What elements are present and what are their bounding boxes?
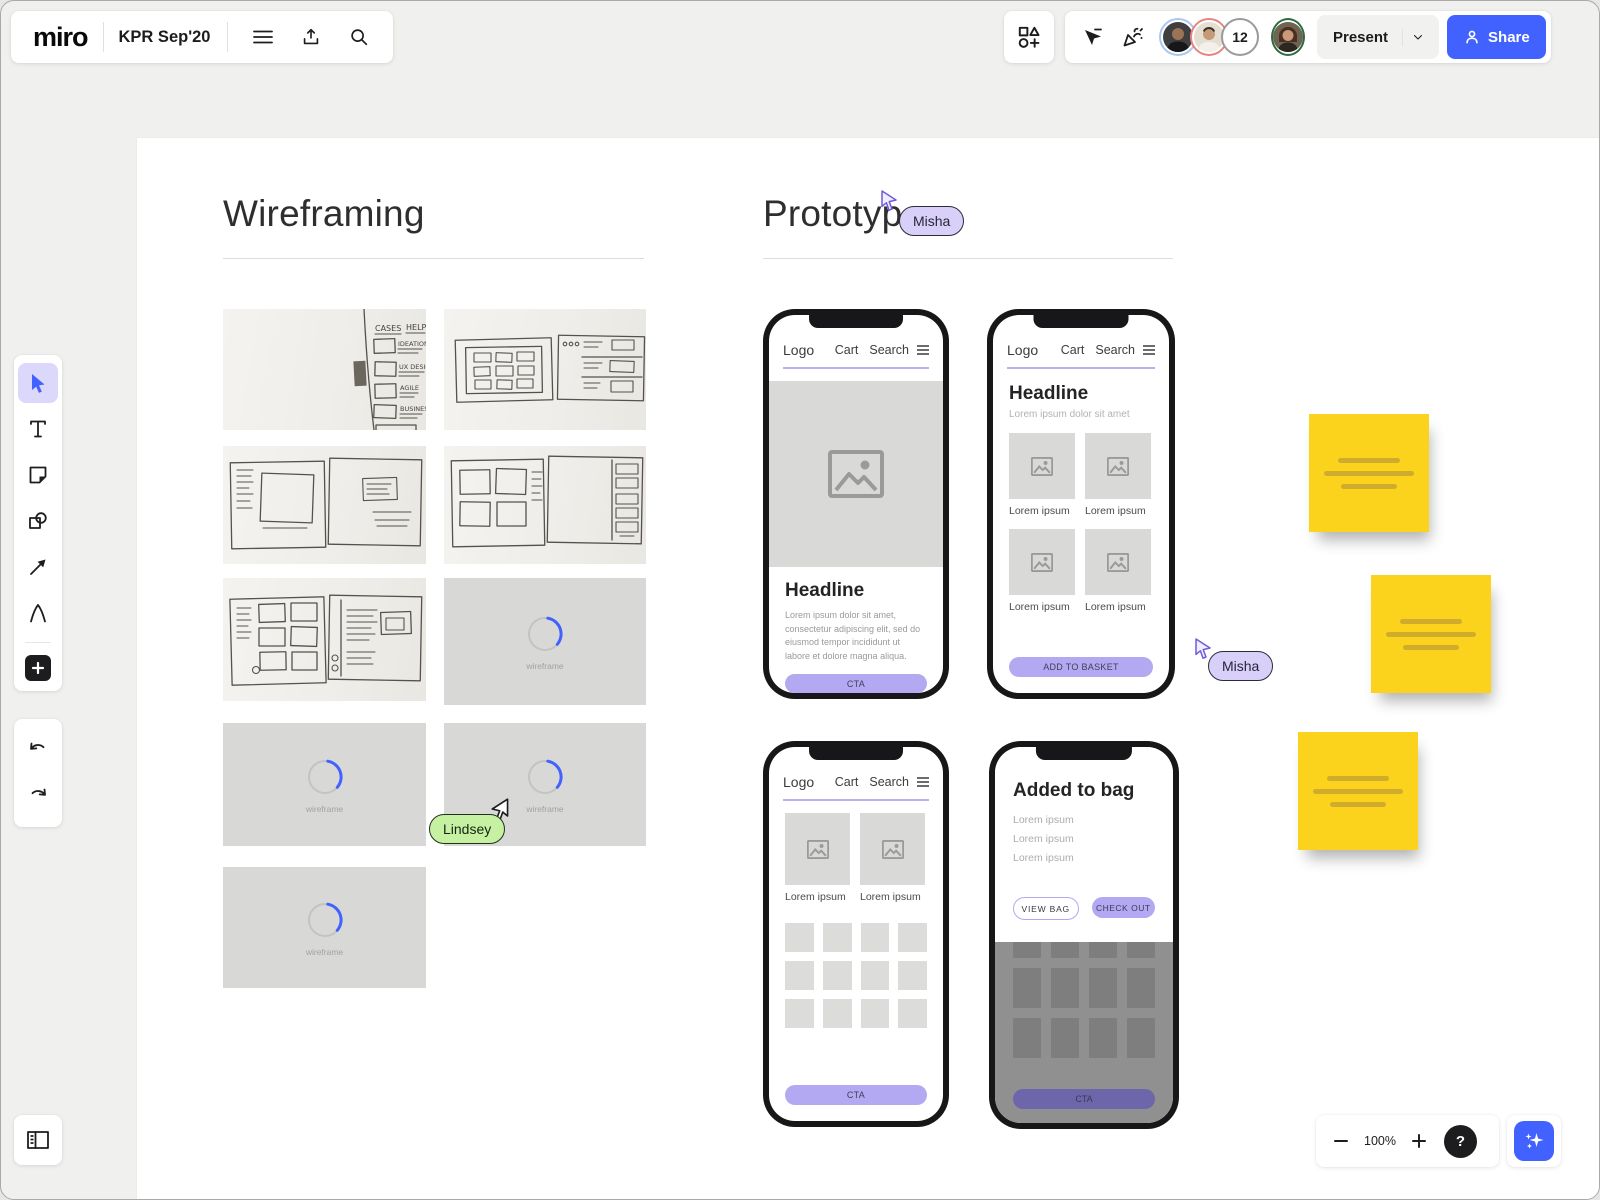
wireframe-photo-5[interactable]: [223, 578, 426, 701]
svg-text:HELP: HELP: [406, 323, 426, 332]
party-popper-icon: [1121, 25, 1145, 49]
dim-grid-tile: [1013, 1018, 1041, 1058]
grid-tile: [898, 961, 927, 990]
sparkles-icon: [1522, 1129, 1546, 1153]
present-button[interactable]: Present: [1317, 15, 1439, 59]
grid-tile: [785, 923, 814, 952]
phone-nav-logo: Logo: [1007, 342, 1050, 358]
phone-subtitle: Lorem ipsum dolor sit amet: [1009, 409, 1153, 420]
frames-panel-button[interactable]: [14, 1115, 62, 1165]
main-menu-button[interactable]: [243, 17, 283, 57]
image-placeholder-icon: [828, 450, 884, 498]
loading-label: wireframe: [526, 661, 563, 671]
phone-mockup-added-to-bag[interactable]: Added to bag Lorem ipsum Lorem ipsum Lor…: [989, 741, 1179, 1129]
more-tools-button[interactable]: [25, 655, 51, 681]
sticky-text-line: [1330, 802, 1386, 807]
assistant-card: [1507, 1115, 1561, 1167]
pen-tool[interactable]: [18, 593, 58, 633]
sticky-text-line: [1400, 619, 1462, 624]
phone-nav-search: Search: [869, 343, 909, 357]
sketch-grid-screens: [444, 309, 646, 430]
text-icon: [26, 417, 50, 441]
miro-app-window: Wireframing Prototyp CASES HELP IDEATION…: [0, 0, 1600, 1200]
miro-logo[interactable]: miro: [33, 22, 88, 53]
dimmed-page-background: CTA: [995, 942, 1173, 1123]
loading-spinner-icon: [303, 755, 347, 799]
zoom-in-button[interactable]: [1404, 1121, 1434, 1161]
loading-label: wireframe: [306, 804, 343, 814]
person-icon: [1463, 28, 1481, 46]
misha-cursor-icon: [877, 189, 899, 211]
sticky-text-line: [1327, 776, 1389, 781]
loading-spinner-icon: [523, 612, 567, 656]
collaborator-cursors-toggle[interactable]: [1073, 17, 1113, 57]
product-caption: Lorem ipsum: [1009, 601, 1085, 613]
arrow-icon: [26, 555, 50, 579]
zoom-out-button[interactable]: [1326, 1121, 1356, 1161]
view-bag-button: VIEW BAG: [1013, 897, 1079, 920]
hamburger-icon: [1143, 345, 1155, 355]
dim-grid-tile: [1089, 942, 1117, 958]
phone-nav-cart: Cart: [1061, 343, 1085, 357]
loading-wireframe-1[interactable]: wireframe: [444, 578, 646, 705]
undo-icon: [26, 738, 50, 762]
dim-grid-tile: [1051, 968, 1079, 1008]
dim-grid-tile: [1051, 1018, 1079, 1058]
sticky-note[interactable]: [1371, 575, 1491, 693]
phone-headline: Headline: [1009, 383, 1153, 405]
minus-icon: [1333, 1133, 1349, 1149]
divider: [103, 22, 104, 52]
text-tool[interactable]: [18, 409, 58, 449]
phone-nav: Logo Cart Search: [783, 342, 929, 358]
phone-nav-cart: Cart: [835, 343, 859, 357]
product-image-placeholder: [785, 813, 850, 885]
phone-nav-underline: [783, 367, 929, 369]
grid-tile: [861, 923, 890, 952]
grid-tile: [823, 999, 852, 1028]
widgets-icon: [1016, 24, 1042, 50]
dim-grid-tile: [1013, 942, 1041, 958]
svg-text:BUSINESS: BUSINESS: [400, 405, 426, 413]
modal-title: Added to bag: [1013, 780, 1155, 802]
avatar[interactable]: [1271, 18, 1305, 56]
widgets-panel-button[interactable]: [1004, 11, 1054, 63]
check-out-button: CHECK OUT: [1092, 897, 1156, 918]
phone-nav-logo: Logo: [783, 774, 824, 790]
avatar-photo: [1194, 22, 1224, 52]
phone-body-text: Lorem ipsum dolor sit amet, consectetur …: [785, 609, 927, 663]
sketch-detail-screens: [223, 446, 426, 564]
sticky-text-line: [1313, 789, 1403, 794]
topbar-right-card: 12 Present Share: [1065, 11, 1551, 63]
product-caption: Lorem ipsum: [1085, 601, 1146, 613]
dim-grid-tile: [1089, 1018, 1117, 1058]
dim-grid-tile: [1051, 942, 1079, 958]
hamburger-icon: [917, 777, 929, 787]
phone-nav-underline: [1007, 367, 1155, 369]
sticky-note-icon: [26, 463, 50, 487]
grid-tile: [823, 923, 852, 952]
cursor-toggle-icon: [1081, 25, 1105, 49]
loading-spinner-icon: [523, 755, 567, 799]
hamburger-icon: [917, 345, 929, 355]
svg-text:UX DESIGN: UX DESIGN: [399, 363, 426, 371]
wireframe-photo-1[interactable]: CASES HELP IDEATION UX DESIGN AGILE BUSI…: [223, 309, 426, 430]
undo-redo-card: [14, 719, 62, 827]
phone-mockup-catalog[interactable]: Logo Cart Search Lorem ipsum Lorem ipsum: [763, 741, 949, 1127]
product-image-placeholder: [1009, 433, 1075, 499]
export-icon: [300, 26, 322, 48]
help-button[interactable]: ?: [1444, 1125, 1477, 1158]
collaborator-avatars[interactable]: 12: [1159, 18, 1259, 56]
svg-text:IDEATION: IDEATION: [398, 340, 426, 348]
divider: [227, 22, 228, 52]
grid-tile: [823, 961, 852, 990]
plus-icon: [1411, 1133, 1427, 1149]
avatar-photo: [1163, 22, 1193, 52]
sticky-text-line: [1403, 645, 1459, 650]
phone-nav-search: Search: [1095, 343, 1135, 357]
pen-icon: [26, 601, 50, 625]
product-image-placeholder: [1085, 529, 1151, 595]
reactions-button[interactable]: [1113, 17, 1153, 57]
grid-tile: [785, 961, 814, 990]
select-tool[interactable]: [18, 363, 58, 403]
sticky-note[interactable]: [1309, 414, 1429, 532]
grid-tile: [785, 999, 814, 1028]
hamburger-icon: [252, 26, 274, 48]
present-label: Present: [1333, 29, 1403, 46]
search-icon: [348, 26, 370, 48]
misha-cursor-label: Misha: [899, 206, 964, 236]
product-image-placeholder: [1009, 529, 1075, 595]
share-label: Share: [1488, 29, 1530, 46]
add-to-basket-button: ADD TO BASKET: [1009, 657, 1153, 677]
avatar-photo: [1273, 22, 1303, 52]
zoom-controls: 100% ?: [1316, 1115, 1499, 1167]
cta-button: CTA: [785, 1085, 927, 1105]
product-caption: Lorem ipsum: [1009, 505, 1085, 517]
dimmed-cta-button: CTA: [1013, 1089, 1155, 1109]
sticky-text-line: [1324, 471, 1414, 476]
redo-icon: [26, 784, 50, 808]
creation-toolbar: [14, 355, 62, 691]
phone-mockup-listing[interactable]: Logo Cart Search Headline Lorem ipsum do…: [987, 309, 1175, 699]
plus-icon: [31, 661, 45, 675]
wireframe-photo-2[interactable]: [444, 309, 646, 430]
phone-notch: [1036, 747, 1132, 760]
phone-headline: Headline: [785, 580, 927, 602]
sticky-note[interactable]: [1298, 732, 1418, 850]
zoom-level[interactable]: 100%: [1362, 1134, 1398, 1148]
sticky-text-line: [1338, 458, 1400, 463]
phone-nav-cart: Cart: [835, 775, 859, 789]
wireframe-photo-3[interactable]: [223, 446, 426, 564]
phone-nav: Logo Cart Search: [1007, 342, 1155, 358]
toolbar-divider: [25, 642, 51, 643]
modal-line: Lorem ipsum: [1013, 852, 1155, 864]
avatar-overflow-count[interactable]: 12: [1221, 18, 1259, 56]
lindsey-cursor-label: Lindsey: [429, 814, 505, 844]
loading-wireframe-4[interactable]: wireframe: [223, 867, 426, 988]
misha-cursor-label: Misha: [1208, 651, 1273, 681]
phone-nav-logo: Logo: [783, 342, 824, 358]
shapes-tool[interactable]: [18, 501, 58, 541]
loading-label: wireframe: [526, 804, 563, 814]
sketch-cards-screens: [444, 446, 646, 564]
modal-line: Lorem ipsum: [1013, 814, 1155, 826]
wireframe-photo-4[interactable]: [444, 446, 646, 564]
ai-assistant-button[interactable]: [1514, 1121, 1554, 1161]
shapes-icon: [26, 509, 50, 533]
chevron-down-icon: [1411, 30, 1425, 44]
phone-notch: [809, 315, 903, 328]
search-button[interactable]: [339, 17, 379, 57]
phone-mockup-hero[interactable]: Logo Cart Search Headline Lorem ipsum do…: [763, 309, 949, 699]
loading-label: wireframe: [306, 947, 343, 957]
loading-wireframe-2[interactable]: wireframe: [223, 723, 426, 846]
sticky-text-line: [1341, 484, 1397, 489]
phone-notch: [1033, 315, 1128, 328]
prototyping-divider: [763, 258, 1173, 259]
phone-nav-search: Search: [869, 775, 909, 789]
product-caption: Lorem ipsum: [785, 891, 860, 903]
product-caption: Lorem ipsum: [860, 891, 921, 903]
phone-nav-underline: [783, 799, 929, 801]
grid-tile: [861, 999, 890, 1028]
share-button[interactable]: Share: [1447, 15, 1546, 59]
topbar-left-card: miro KPR Sep'20: [11, 11, 393, 63]
product-image-placeholder: [1085, 433, 1151, 499]
wireframing-divider: [223, 258, 644, 259]
connector-tool[interactable]: [18, 547, 58, 587]
select-cursor-icon: [26, 371, 50, 395]
sticky-text-line: [1386, 632, 1476, 637]
grid-tile: [898, 999, 927, 1028]
dim-grid-tile: [1013, 968, 1041, 1008]
redo-button[interactable]: [18, 776, 58, 816]
misha-cursor-icon: [1191, 637, 1213, 659]
sketch-sitemap-drawing: CASES HELP IDEATION UX DESIGN AGILE BUSI…: [223, 309, 426, 430]
present-dropdown[interactable]: [1403, 30, 1433, 44]
product-image-placeholder: [860, 813, 925, 885]
modal-line: Lorem ipsum: [1013, 833, 1155, 845]
undo-button[interactable]: [18, 730, 58, 770]
sticky-note-tool[interactable]: [18, 455, 58, 495]
dim-grid-tile: [1089, 968, 1117, 1008]
added-to-bag-modal: Added to bag Lorem ipsum Lorem ipsum Lor…: [995, 747, 1173, 942]
grid-tile: [861, 961, 890, 990]
phone-notch: [809, 747, 903, 760]
frames-panel-icon: [25, 1128, 51, 1152]
hero-image-placeholder: [769, 381, 943, 567]
loading-spinner-icon: [303, 898, 347, 942]
cta-button: CTA: [785, 674, 927, 693]
dim-grid-tile: [1127, 968, 1155, 1008]
product-caption: Lorem ipsum: [1085, 505, 1146, 517]
grid-tile: [898, 923, 927, 952]
export-button[interactable]: [291, 17, 331, 57]
svg-text:AGILE: AGILE: [400, 384, 419, 392]
dim-grid-tile: [1127, 942, 1155, 958]
svg-text:CASES: CASES: [375, 324, 401, 333]
section-title-wireframing[interactable]: Wireframing: [223, 193, 425, 235]
phone-nav: Logo Cart Search: [783, 774, 929, 790]
dim-grid-tile: [1127, 1018, 1155, 1058]
sketch-gallery-screens: [223, 578, 426, 701]
board-title[interactable]: KPR Sep'20: [119, 28, 211, 47]
